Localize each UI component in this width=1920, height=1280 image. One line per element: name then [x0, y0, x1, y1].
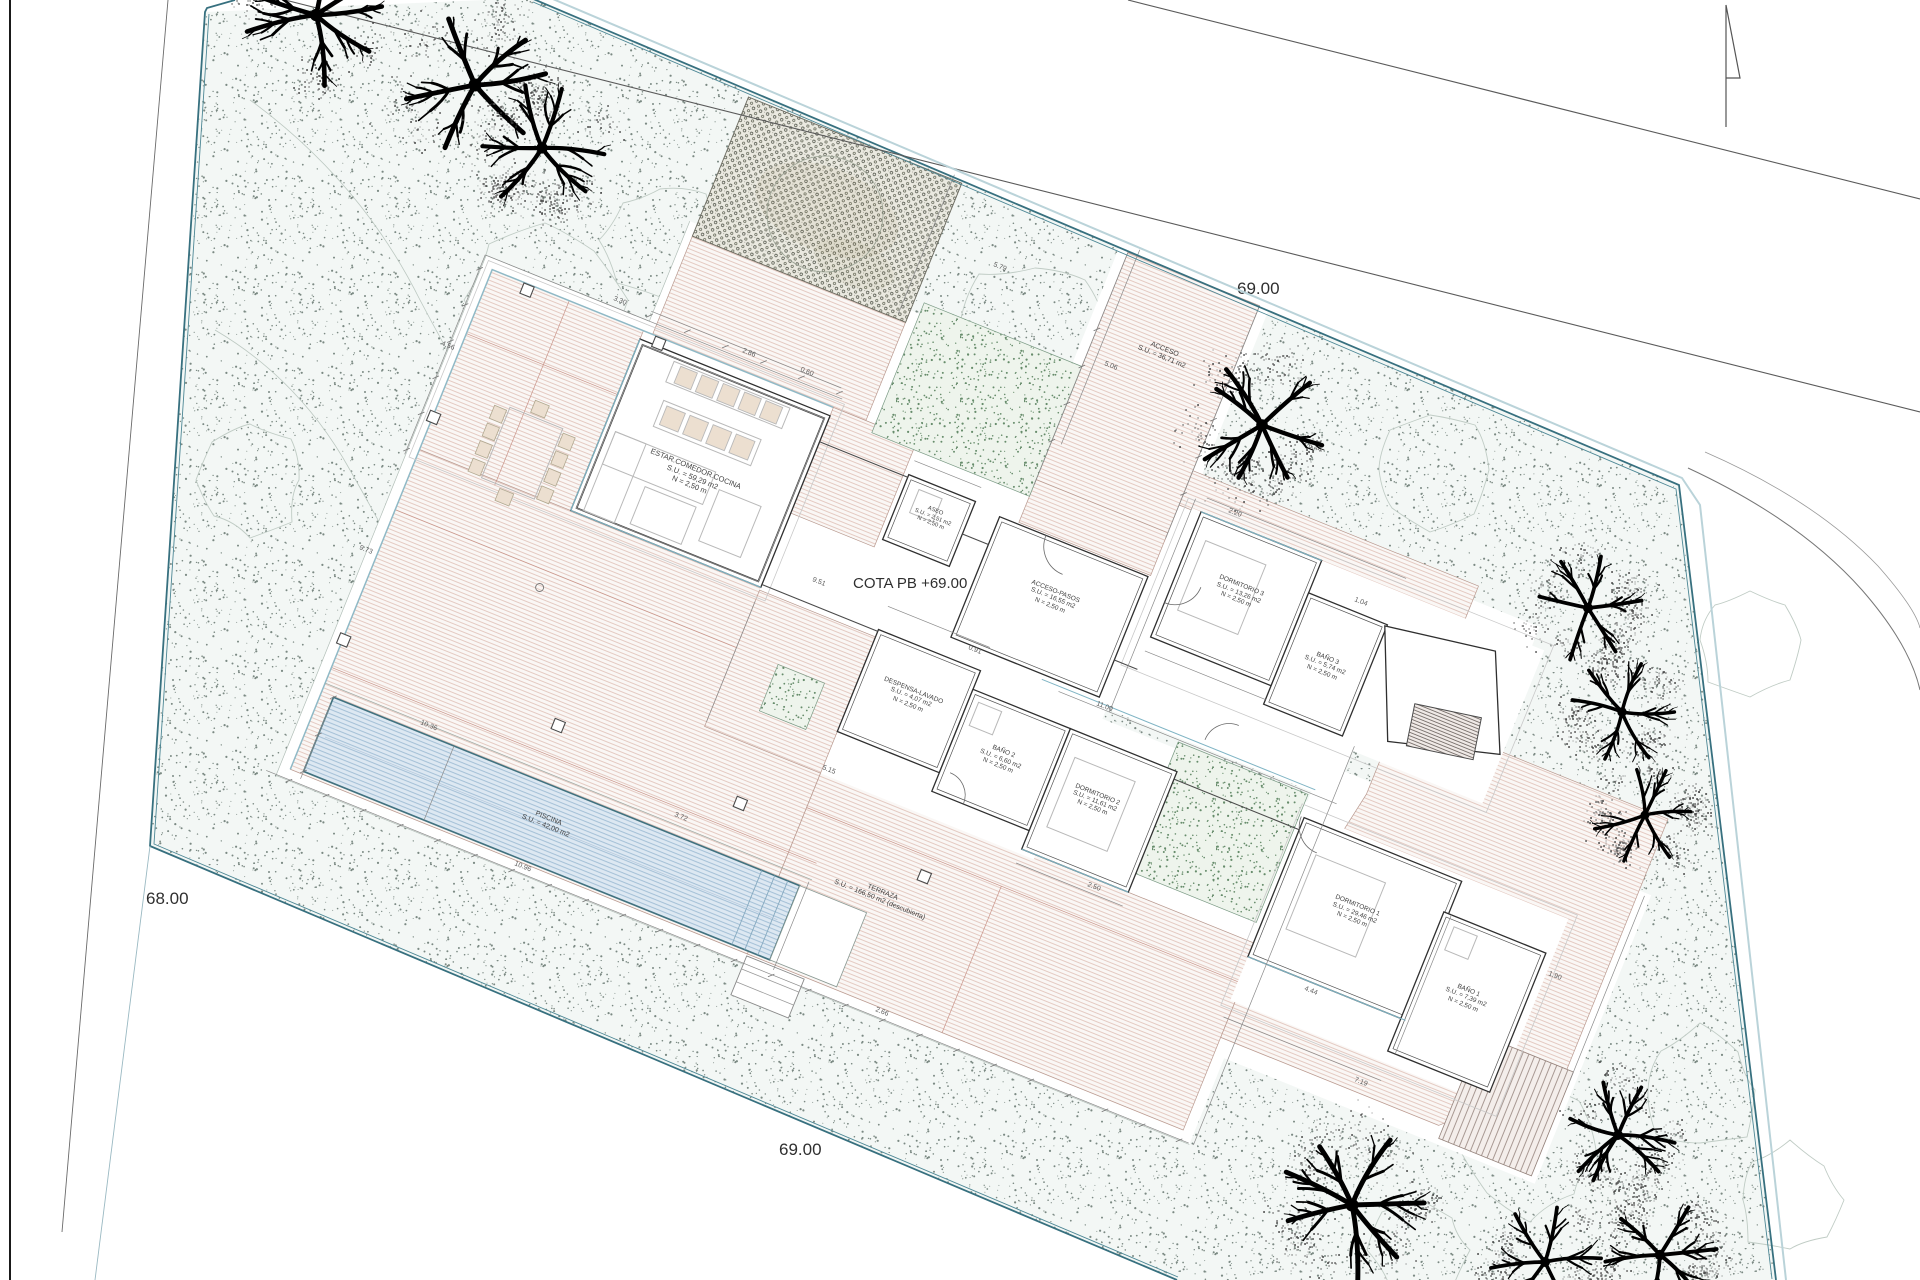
svg-text:COTA PB +69.00: COTA PB +69.00	[853, 575, 967, 592]
svg-text:68.00: 68.00	[146, 889, 189, 908]
svg-text:69.00: 69.00	[779, 1140, 822, 1159]
svg-text:69.00: 69.00	[1237, 279, 1280, 298]
